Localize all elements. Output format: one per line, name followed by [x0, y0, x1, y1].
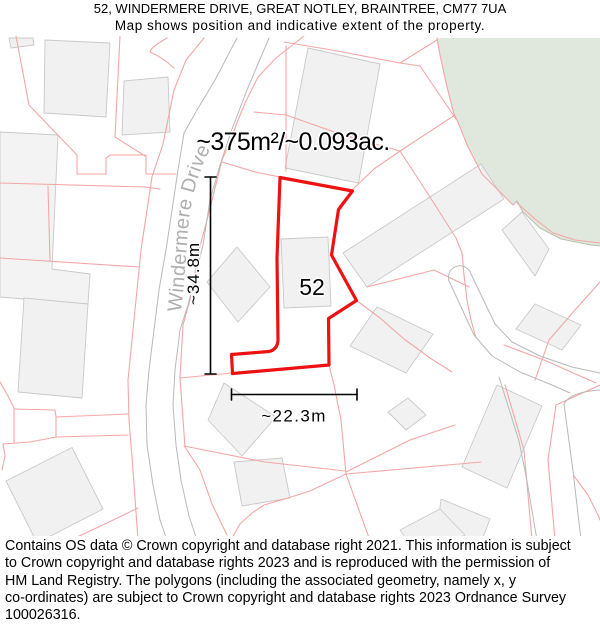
svg-text:~375m²/~0.093ac.: ~375m²/~0.093ac.: [196, 128, 389, 156]
svg-text:52: 52: [299, 274, 325, 300]
svg-text:~22.3m: ~22.3m: [261, 407, 327, 426]
svg-text:~34.8m: ~34.8m: [184, 242, 203, 305]
